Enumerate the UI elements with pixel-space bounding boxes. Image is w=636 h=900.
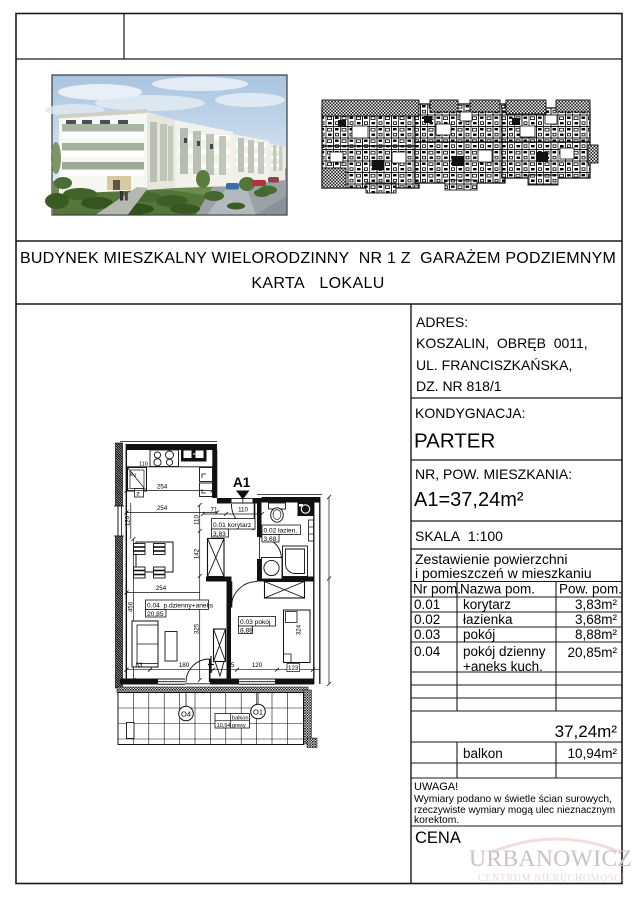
svg-text:UWAGA!: UWAGA!: [414, 781, 458, 793]
svg-text:balkon: balkon: [232, 716, 249, 722]
svg-text:3,68: 3,68: [264, 536, 277, 543]
svg-text:BUDYNEK MIESZKALNY WIELORODZIN: BUDYNEK MIESZKALNY WIELORODZINNY NR 1 Z …: [20, 248, 616, 267]
svg-text:120: 120: [125, 515, 132, 526]
svg-text:8,88: 8,88: [240, 627, 253, 634]
svg-text:142: 142: [194, 548, 201, 559]
svg-text:110: 110: [194, 515, 201, 525]
svg-text:254: 254: [156, 585, 167, 592]
svg-text:3,83m²: 3,83m²: [575, 597, 618, 612]
svg-text:254: 254: [157, 505, 168, 512]
svg-text:z: z: [137, 491, 140, 498]
svg-text:CENTRUM NIERUCHOMOŚCI: CENTRUM NIERUCHOMOŚCI: [478, 872, 625, 884]
svg-text:NR, POW. MIESZKANIA:: NR, POW. MIESZKANIA:: [415, 466, 572, 482]
svg-text:0.03 pokój: 0.03 pokój: [240, 619, 271, 626]
svg-text:korytarz: korytarz: [463, 597, 511, 612]
svg-text:O4: O4: [181, 709, 191, 718]
svg-text:KARTA LOKALU: KARTA LOKALU: [251, 275, 384, 292]
svg-text:Pow. pom.: Pow. pom.: [559, 582, 622, 597]
svg-text:8,88m²: 8,88m²: [575, 627, 618, 642]
svg-text:O1: O1: [253, 707, 263, 716]
svg-text:ADRES:: ADRES:: [416, 314, 468, 330]
svg-text:i pomieszczeń w mieszkaniu: i pomieszczeń w mieszkaniu: [415, 565, 592, 581]
svg-text:254: 254: [157, 484, 168, 491]
svg-text:180: 180: [179, 662, 190, 669]
svg-text:Wymiary podano w świetle ścian: Wymiary podano w świetle ścian surowych,: [414, 794, 612, 805]
svg-text:71: 71: [211, 507, 218, 514]
svg-text:20,85: 20,85: [147, 611, 164, 618]
svg-text:0.04: 0.04: [414, 644, 441, 659]
svg-text:A1=37,24m²: A1=37,24m²: [414, 489, 524, 511]
svg-text:0.02: 0.02: [414, 612, 440, 627]
svg-text:KOSZALIN, OBRĘB 0011,: KOSZALIN, OBRĘB 0011,: [416, 335, 588, 351]
svg-text:A1: A1: [233, 475, 251, 490]
svg-text:35: 35: [228, 662, 235, 669]
svg-text:324: 324: [296, 624, 303, 635]
svg-text:3,83: 3,83: [213, 531, 226, 538]
svg-text:PARTER: PARTER: [414, 430, 495, 453]
svg-text:balkon: balkon: [463, 746, 503, 761]
svg-text:UL. FRANCISZKAŃSKA,: UL. FRANCISZKAŃSKA,: [416, 357, 572, 373]
svg-text:0.03: 0.03: [414, 627, 440, 642]
svg-text:110: 110: [139, 462, 148, 468]
svg-text:KONDYGNACJA:: KONDYGNACJA:: [415, 405, 525, 421]
svg-text:łazienka: łazienka: [463, 612, 513, 627]
svg-text:456: 456: [127, 601, 134, 612]
svg-text:klg: klg: [130, 472, 136, 477]
svg-text:110: 110: [238, 507, 248, 514]
svg-text:0.01: 0.01: [414, 597, 440, 612]
svg-text:DZ. NR 818/1: DZ. NR 818/1: [416, 378, 502, 394]
svg-text:Nazwa pom.: Nazwa pom.: [460, 582, 535, 597]
svg-text:83: 83: [136, 662, 143, 669]
svg-text:0.01 korytarz: 0.01 korytarz: [213, 522, 251, 529]
svg-text:+aneks kuch.: +aneks kuch.: [463, 659, 543, 674]
svg-text:pokój: pokój: [463, 627, 495, 642]
svg-text:325: 325: [194, 623, 201, 634]
svg-text:pokój dzienny: pokój dzienny: [463, 644, 546, 659]
svg-text:3,68m²: 3,68m²: [575, 612, 618, 627]
svg-text:10,94m²: 10,94m²: [567, 746, 617, 761]
svg-text:10,94: 10,94: [217, 723, 231, 729]
svg-text:120: 120: [252, 662, 263, 669]
svg-text:0.04 p.dzienny+aneks: 0.04 p.dzienny+aneks: [147, 603, 214, 610]
svg-text:gresy: gresy: [232, 723, 246, 729]
svg-text:URBANOWICZ: URBANOWICZ: [469, 846, 632, 872]
svg-text:Nr pom.: Nr pom.: [413, 582, 461, 597]
svg-text:20,85m²: 20,85m²: [567, 645, 617, 660]
svg-text:123: 123: [288, 665, 299, 672]
svg-text:korektom.: korektom.: [414, 815, 459, 826]
svg-text:SKALA 1:100: SKALA 1:100: [415, 528, 503, 544]
svg-text:0.02 łazien.: 0.02 łazien.: [264, 528, 298, 535]
svg-text:37,24m²: 37,24m²: [555, 722, 618, 741]
svg-text:CENA: CENA: [415, 829, 461, 847]
